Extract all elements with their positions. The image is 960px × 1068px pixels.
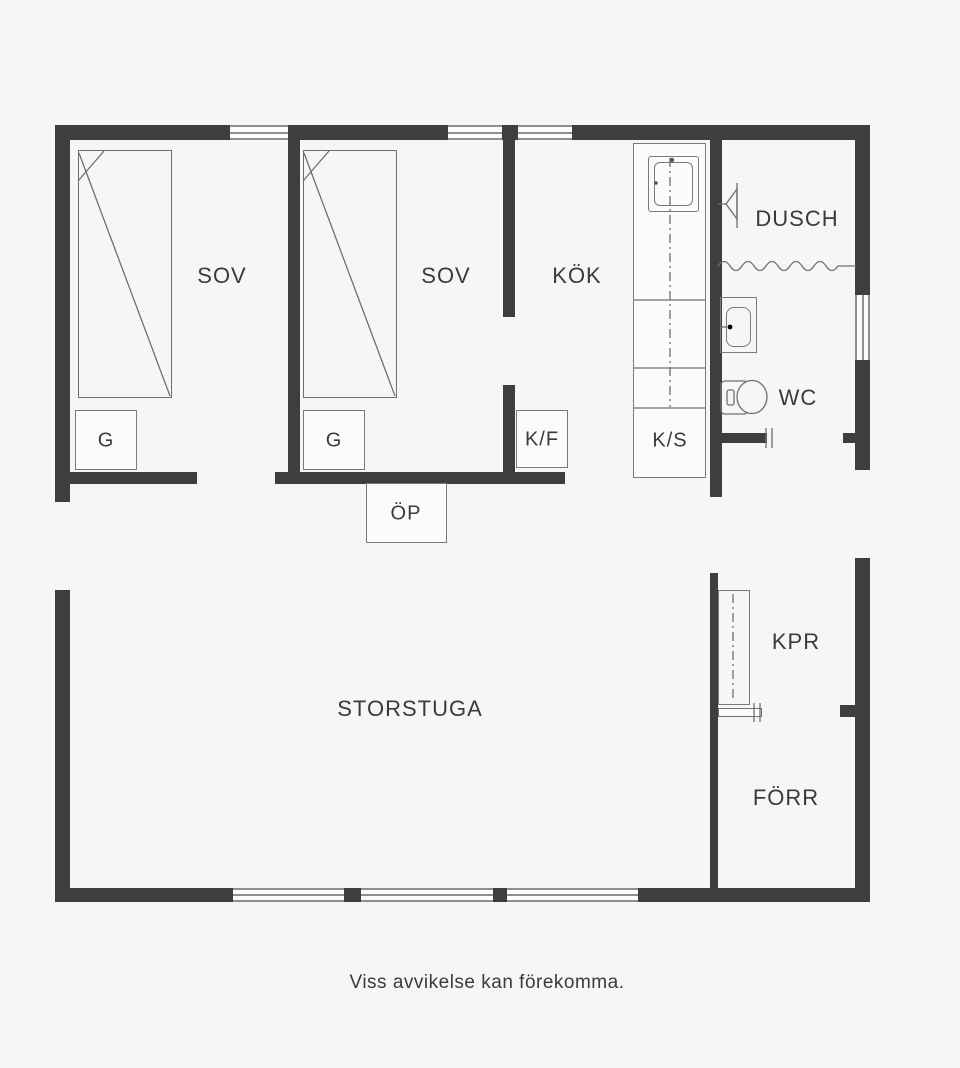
room-label-forr: FÖRR	[753, 785, 819, 811]
room-label-kpr: KPR	[772, 629, 820, 655]
kpr-rail-ticks	[754, 703, 760, 722]
fixture-label-fireplace: ÖP	[391, 503, 422, 526]
kitchen-column-lines	[634, 158, 705, 408]
room-label-sov2: SOV	[421, 263, 470, 289]
shower-icon	[718, 183, 737, 228]
bed-2-lines	[303, 151, 395, 396]
bed-1-lines	[78, 151, 170, 396]
fixture-label-pantry-cabinet: K/S	[652, 430, 687, 453]
bathroom-door-ticks	[766, 428, 772, 448]
plan-detail-overlay	[0, 0, 960, 1068]
floor-plan: SOV SOV KÖK DUSCH WC STORSTUGA KPR FÖRR …	[0, 0, 960, 1068]
room-label-storstuga: STORSTUGA	[337, 696, 483, 722]
fixture-label-wardrobe1: G	[98, 430, 115, 453]
washbasin-faucet	[720, 325, 732, 330]
fixture-label-fridge-freezer: K/F	[525, 429, 559, 452]
shower-curtain-line	[718, 262, 856, 271]
disclaimer-text: Viss avvikelse kan förekomma.	[350, 972, 625, 994]
room-label-wc: WC	[779, 385, 818, 411]
fixture-label-wardrobe2: G	[326, 430, 343, 453]
room-label-sov1: SOV	[197, 263, 246, 289]
toilet-icon	[721, 381, 767, 415]
room-label-dusch: DUSCH	[755, 206, 838, 232]
room-label-kok: KÖK	[552, 263, 601, 289]
